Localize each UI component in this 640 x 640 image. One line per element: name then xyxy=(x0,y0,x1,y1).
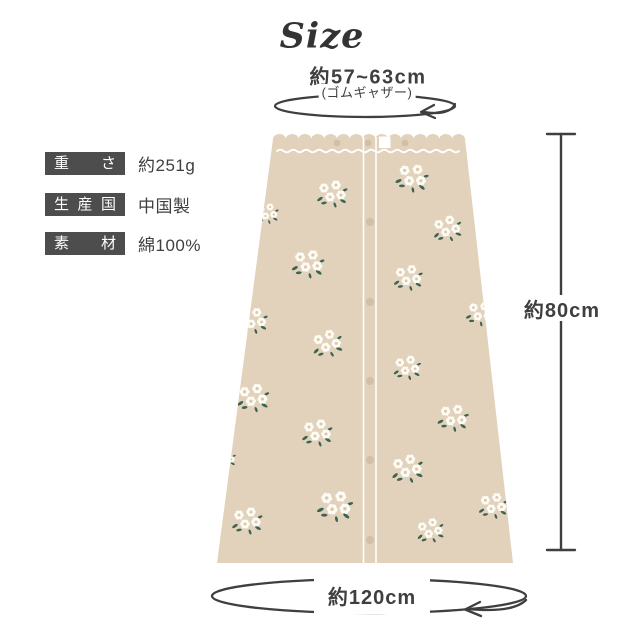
hem-measurement: 約120cm xyxy=(314,576,430,614)
spec-value-country: 中国製 xyxy=(138,192,191,217)
spec-value-weight: 約251g xyxy=(138,151,195,176)
length-measurement: 約80cm xyxy=(522,295,602,321)
waist-tag xyxy=(379,137,391,149)
spec-value-material: 綿100% xyxy=(138,231,201,256)
page-title: Size xyxy=(280,16,365,57)
waist-note: (ゴムギャザー) xyxy=(319,84,416,102)
length-line xyxy=(547,134,575,550)
spec-label-weight: 重さ xyxy=(45,152,125,175)
size-chart-page: Size 約57~63cm (ゴムギャザー) 約80cm 約120cm 重さ 約… xyxy=(0,0,640,640)
spec-label-material: 素材 xyxy=(45,232,125,255)
skirt-shape xyxy=(217,134,513,563)
spec-row-material: 素材 綿100% xyxy=(45,231,201,256)
spec-row-country: 生産国 中国製 xyxy=(45,192,191,217)
spec-row-weight: 重さ 約251g xyxy=(45,151,195,176)
spec-label-country: 生産国 xyxy=(45,193,125,216)
